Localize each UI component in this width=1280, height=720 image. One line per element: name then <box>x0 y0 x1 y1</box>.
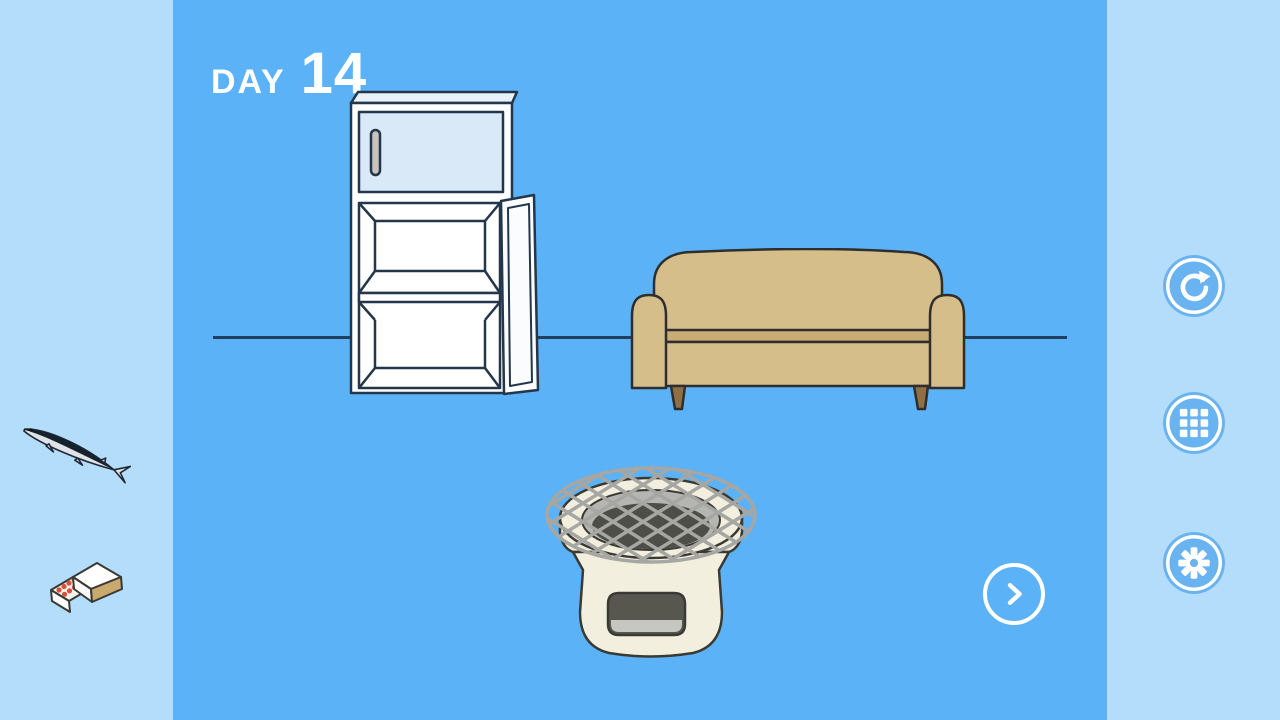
charcoal-grill[interactable] <box>543 460 758 665</box>
sofa-leg-left <box>671 386 685 409</box>
next-button[interactable] <box>983 563 1045 625</box>
inventory-item-matchbox[interactable] <box>45 556 140 636</box>
game-stage: DAY 14 <box>173 0 1107 720</box>
chevron-right-icon <box>998 578 1030 610</box>
refresh-icon <box>1177 269 1211 303</box>
grid-icon <box>1177 406 1211 440</box>
fish-icon <box>22 408 147 493</box>
fridge-shelf <box>359 271 500 293</box>
day-counter: DAY 14 <box>211 40 367 107</box>
fridge-interior <box>359 203 500 388</box>
grill-vent <box>608 593 685 635</box>
freezer-handle <box>371 130 380 175</box>
fridge-top <box>351 92 517 103</box>
sofa-arm-right <box>930 295 964 388</box>
inventory-item-fish[interactable] <box>22 408 147 498</box>
retry-button[interactable] <box>1163 255 1225 317</box>
settings-button[interactable] <box>1163 532 1225 594</box>
levels-button[interactable] <box>1163 392 1225 454</box>
sofa-arm-left <box>632 295 666 388</box>
sofa-front <box>658 342 938 386</box>
menu-panel <box>1107 0 1280 720</box>
sofa-leg-right <box>914 386 928 409</box>
day-label: DAY <box>211 63 286 102</box>
matchbox-icon <box>45 556 140 631</box>
gear-icon <box>1177 546 1211 580</box>
inventory-panel <box>0 0 173 720</box>
sofa-seat <box>658 330 938 342</box>
refrigerator[interactable] <box>345 84 540 396</box>
sofa[interactable] <box>630 248 966 412</box>
